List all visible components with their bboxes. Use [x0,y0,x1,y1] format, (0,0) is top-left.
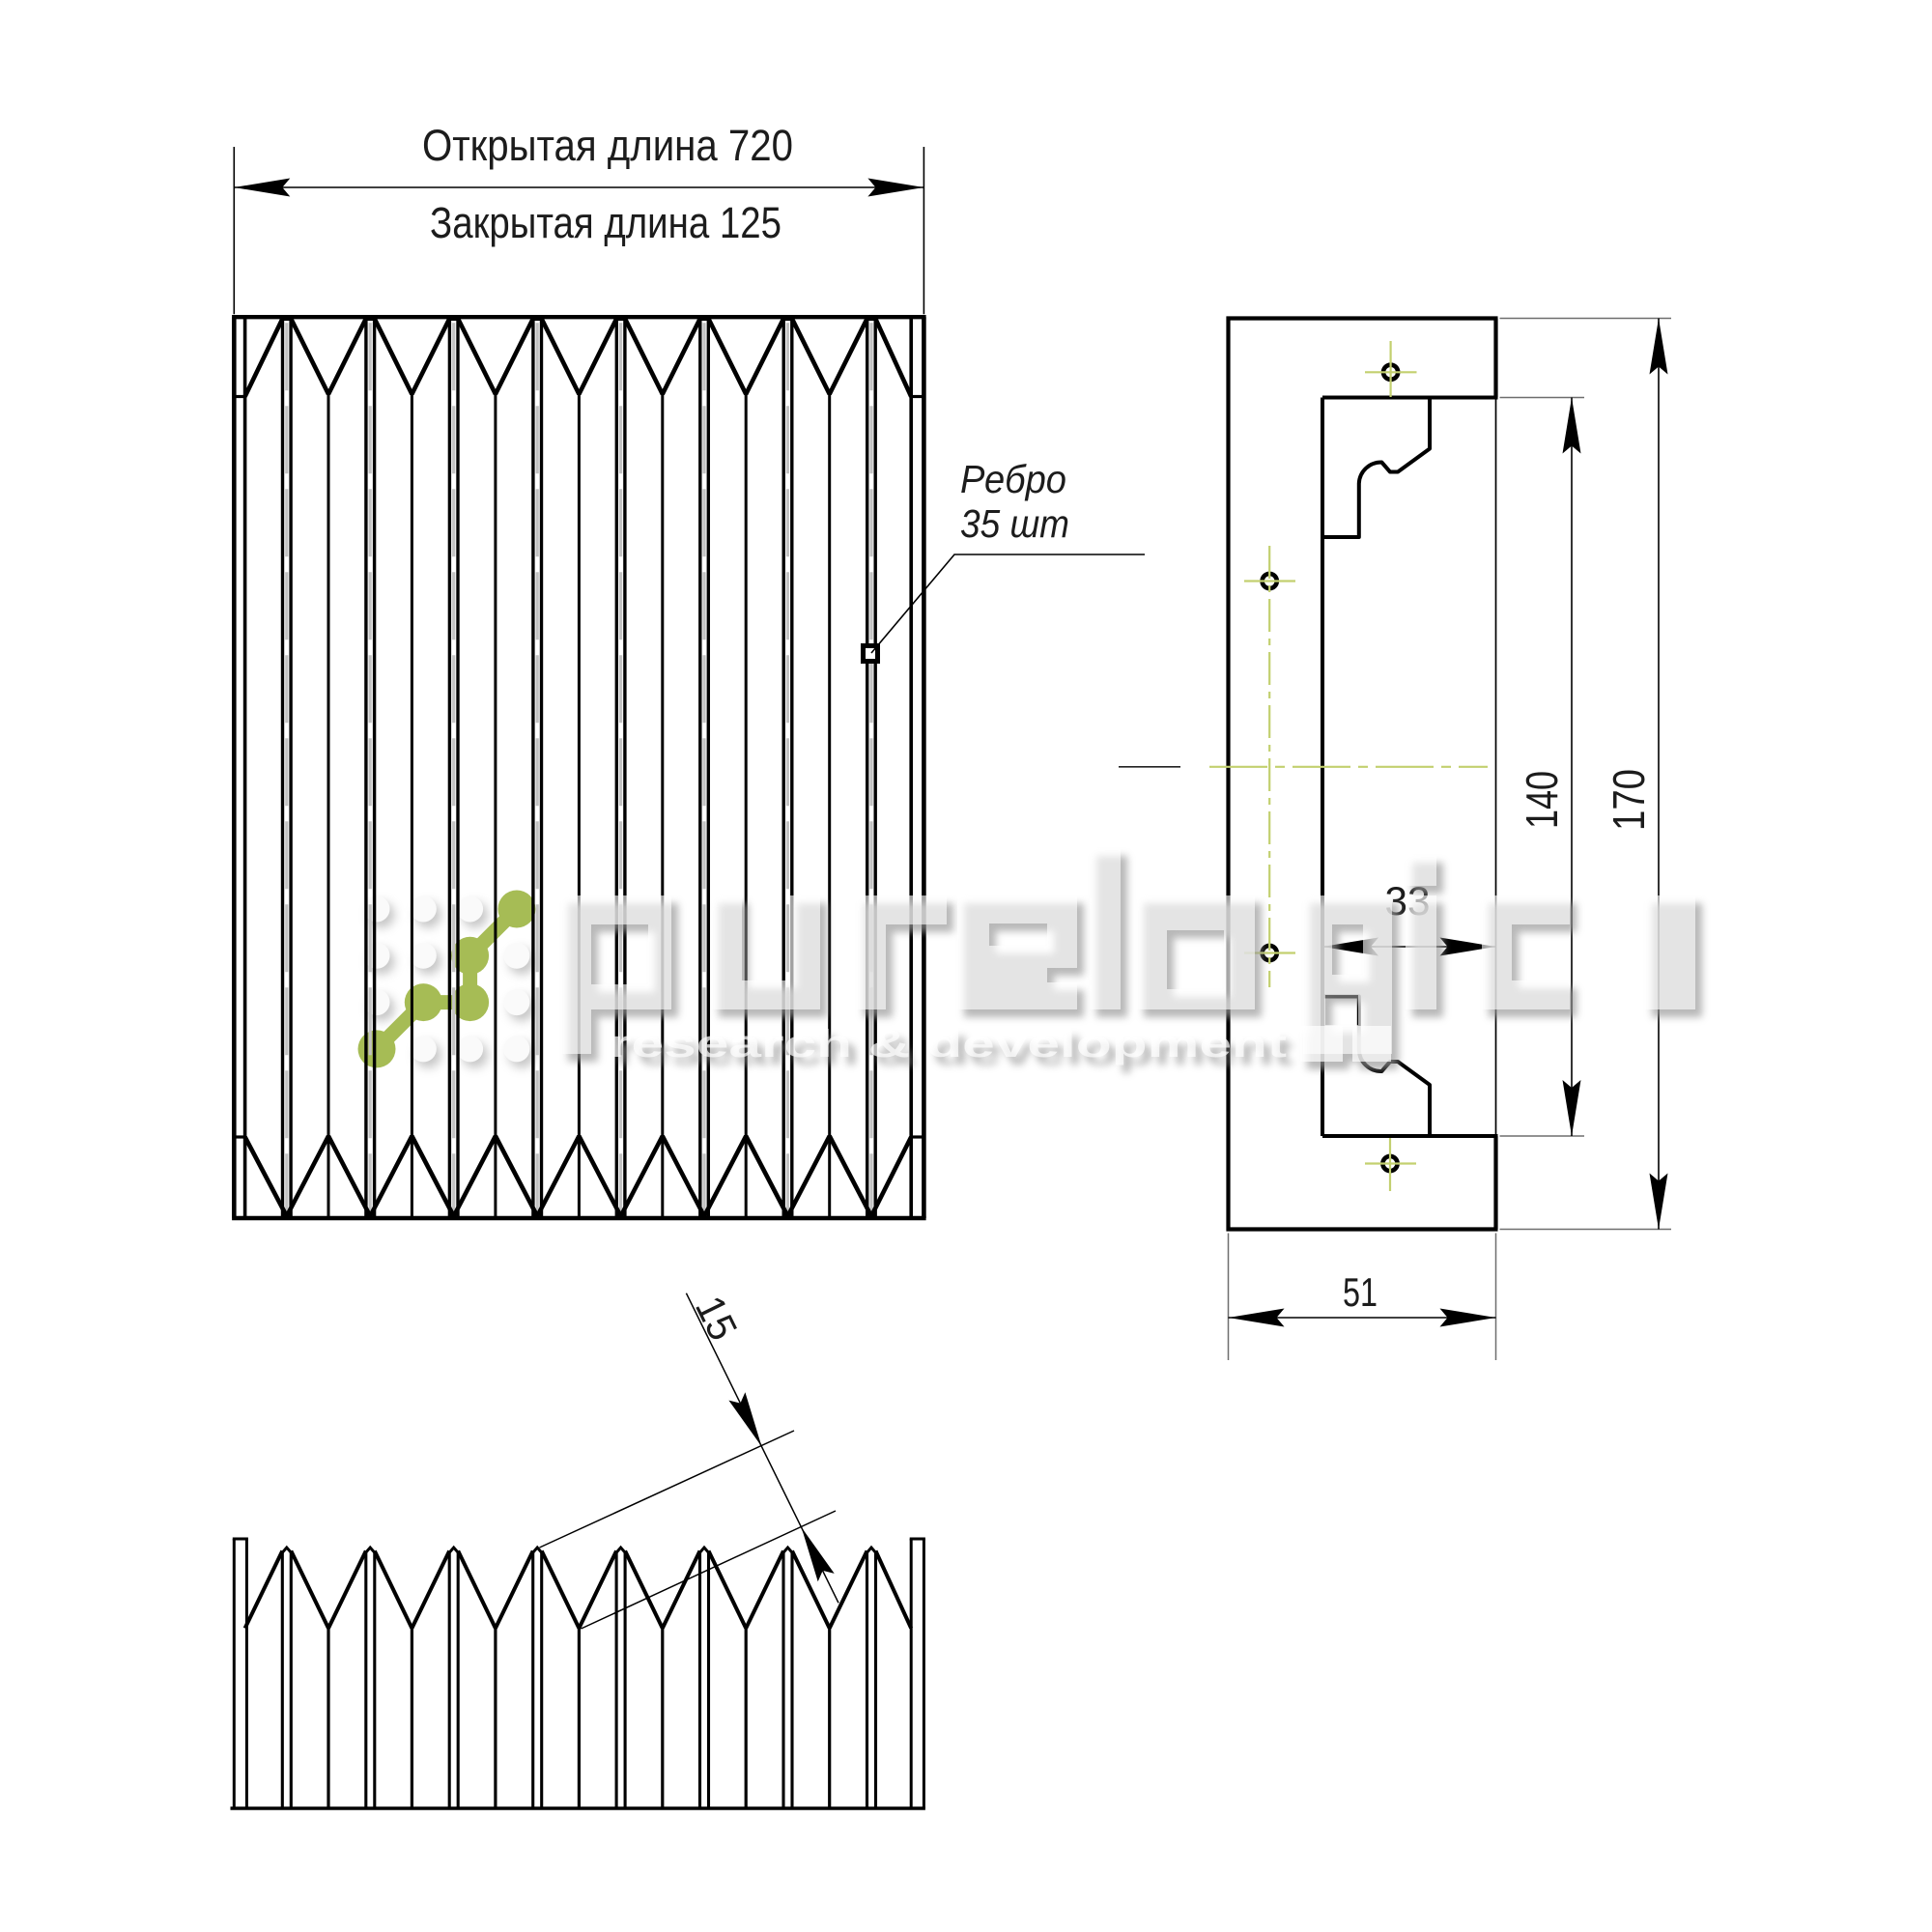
svg-text:140: 140 [1517,771,1567,829]
svg-text:51: 51 [1343,1269,1378,1315]
svg-text:Закрытая длина 125: Закрытая длина 125 [430,198,781,247]
svg-text:Открытая длина 720: Открытая длина 720 [422,121,793,170]
svg-text:170: 170 [1604,769,1654,831]
svg-text:research & development: research & development [609,1023,1287,1065]
svg-text:35 шт: 35 шт [960,501,1069,546]
svg-text:Ребро: Ребро [960,457,1066,501]
